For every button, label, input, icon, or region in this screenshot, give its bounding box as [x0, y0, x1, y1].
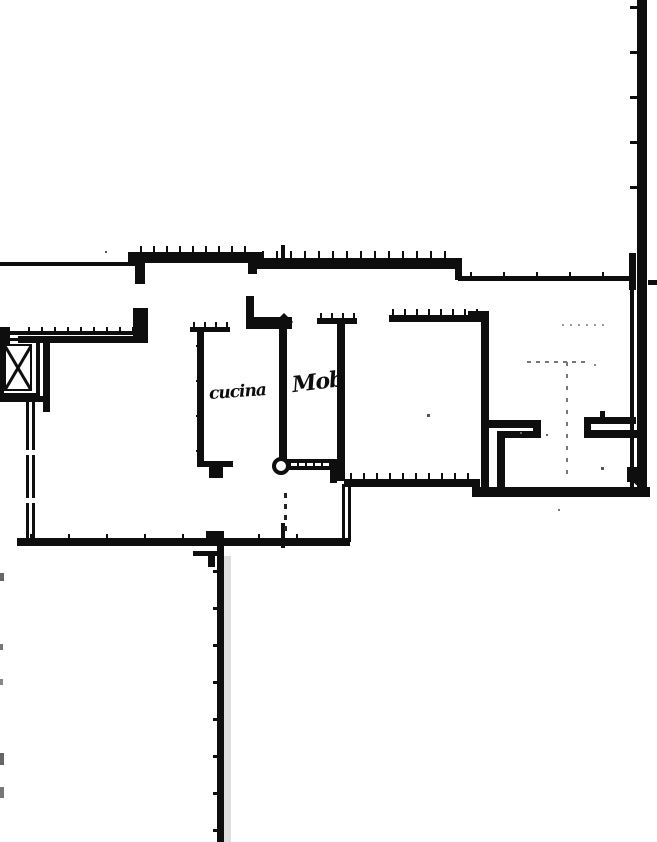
wall-junction-blob — [275, 313, 293, 331]
kitchen-room-label: cucina — [208, 380, 266, 404]
floorplan-scan-page: cucina Mob — [0, 0, 657, 842]
floorplan-overlay-svg — [0, 0, 657, 842]
door-swing-arc — [629, 469, 646, 488]
